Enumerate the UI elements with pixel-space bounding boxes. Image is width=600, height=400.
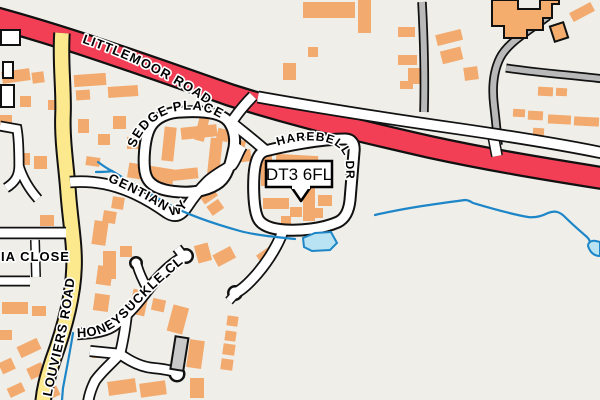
street-label-littlemoor-road: LITTLEMOOR ROAD — [81, 31, 215, 107]
street-label-ia-close: IA CLOSE — [1, 249, 70, 264]
pond — [303, 232, 337, 251]
pond-east-edge — [588, 241, 600, 256]
garage-block — [170, 336, 188, 371]
stream-gentian — [98, 162, 112, 171]
marker-label: DT3 6FL — [266, 165, 332, 184]
stream-east — [375, 200, 591, 247]
map-canvas[interactable]: LITTLEMOOR ROAD SEDGE PLACE HAREBELL DR … — [0, 0, 600, 400]
large-building-top-right — [492, 0, 559, 38]
